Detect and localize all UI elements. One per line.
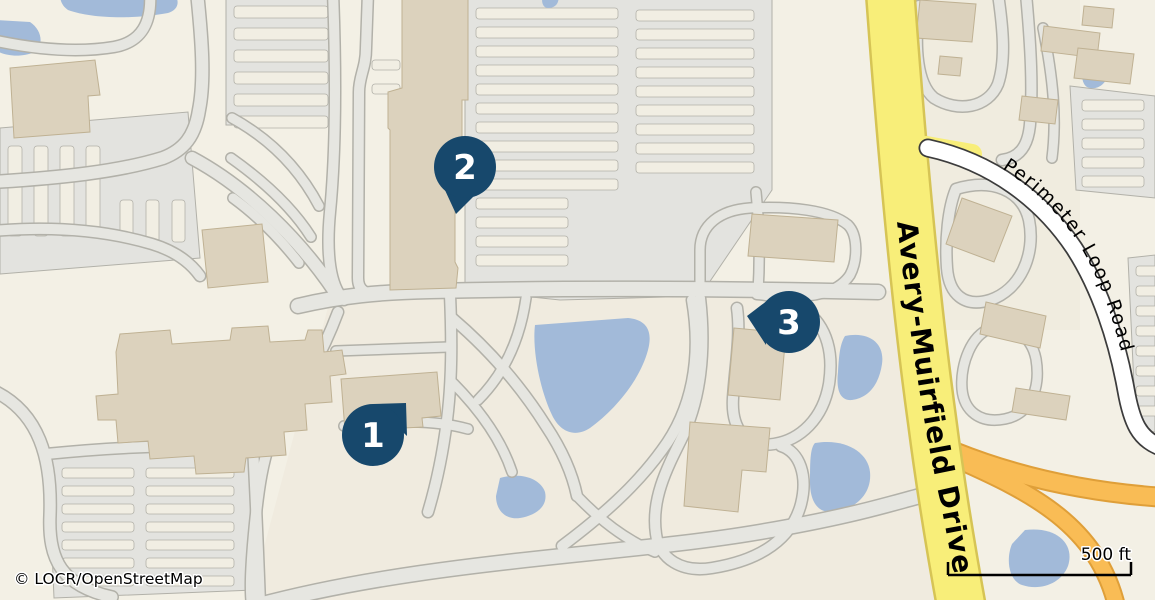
map-attribution: © LOCR/OpenStreetMap — [14, 570, 203, 588]
scale-bar-label: 500 ft — [1081, 545, 1132, 565]
map-viewport[interactable]: Avery-Muirfield Drive Perimeter Loop Roa… — [0, 0, 1155, 600]
marker-3-number: 3 — [777, 303, 801, 343]
map-canvas[interactable]: Avery-Muirfield Drive Perimeter Loop Roa… — [0, 0, 1155, 600]
marker-2-number: 2 — [453, 148, 477, 188]
marker-1-number: 1 — [361, 416, 385, 456]
